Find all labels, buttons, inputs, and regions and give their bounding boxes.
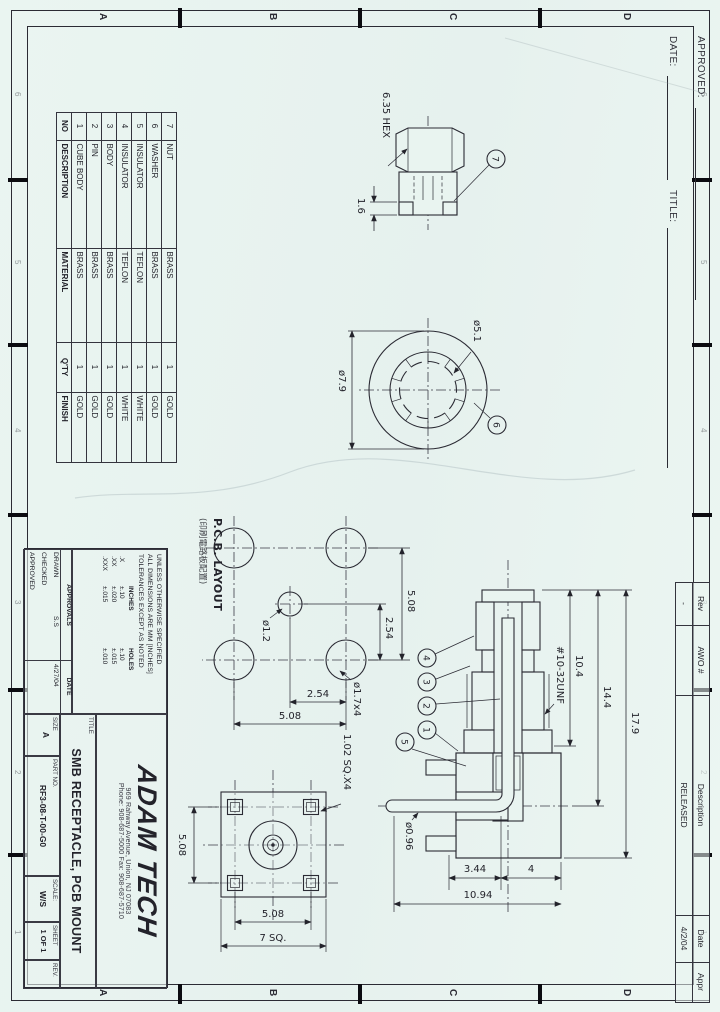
section-len-front-dim: 10.4 — [573, 655, 584, 677]
tol-cell: ±.020 — [109, 586, 118, 648]
note-line: TOLERANCES EXCEPT AS NOTED — [136, 554, 145, 710]
front-pitch-v-dim: 5.08 — [262, 909, 284, 920]
part-description: INSULATOR — [117, 140, 133, 249]
part-finish: WHITE — [132, 392, 148, 463]
tol-col-inches: INCHES — [126, 586, 135, 648]
part-qty: 1 — [132, 342, 148, 393]
section-h-top-dim: 4 — [528, 864, 534, 875]
drawn-by: S.S — [52, 616, 59, 627]
part-description: PIN — [87, 140, 103, 249]
company-phone-fax: Phone: 908-687-5000 Fax: 908-687-5710 — [117, 714, 124, 988]
part-qty: 1 — [147, 342, 163, 393]
sheet-label: SHEET — [51, 922, 60, 960]
size-box: SIZE A — [23, 713, 61, 757]
engineering-drawing-sheet: D C B A D C B A 6 5 4 3 2 1 6 5 4 3 2 1 … — [0, 0, 720, 1012]
tol-cell: ±.015 — [100, 586, 109, 648]
lock-washer-view: ø7.9 ø5.1 6 — [336, 318, 506, 462]
bom-header-description: DESCRIPTION — [57, 140, 73, 249]
part-no-label: PART NO. — [51, 756, 60, 876]
part-material: BRASS — [102, 248, 118, 343]
balloon-7: 7 — [490, 156, 500, 162]
tol-cell: ±.015 — [109, 648, 118, 708]
pcb-corner-hole-dim: ø1.7x4 — [351, 682, 362, 716]
part-finish: GOLD — [147, 392, 163, 463]
checked-label: CHECKED — [40, 552, 47, 585]
approvals-label: APPROVALS — [61, 584, 72, 626]
part-no: 5 — [132, 112, 148, 141]
tol-spacer — [126, 556, 135, 586]
title-box-label: TITLE — [87, 717, 94, 734]
bom-header-material: MATERIAL — [57, 248, 73, 343]
scan-crease — [75, 459, 635, 498]
title-box: TITLE SMB RECEPTACLE, PCB MOUNT — [59, 713, 97, 989]
section-thread-spec: #10-32UNF — [554, 646, 565, 704]
drawing-title: SMB RECEPTACLE, PCB MOUNT — [69, 714, 83, 988]
approved-row-label: APPROVED — [28, 552, 35, 590]
part-description: CUBE BODY — [72, 140, 88, 249]
tolerance-notes: UNLESS OTHERWISE SPECIFIED ALL DIMENSION… — [71, 549, 167, 715]
front-pitch-h-dim: 5.08 — [176, 834, 187, 856]
part-finish: GOLD — [162, 392, 178, 463]
tol-cell: .X — [117, 556, 126, 586]
balloon-4: 4 — [421, 655, 431, 661]
rev-box-label: REV. — [51, 960, 60, 988]
part-qty: 1 — [87, 342, 103, 393]
title-block: UNLESS OTHERWISE SPECIFIED ALL DIMENSION… — [24, 548, 168, 988]
sheet-value: 1 OF 1 — [39, 922, 48, 960]
part-no: 1 — [72, 112, 88, 141]
approvals-date-label: DATE — [61, 678, 72, 696]
balloon-3: 3 — [421, 679, 431, 685]
part-qty: 1 — [102, 342, 118, 393]
note-line: ALL DIMENSIONS ARE MM [INCHES] — [145, 554, 154, 710]
scale-label: SCALE: — [51, 876, 60, 922]
part-material: TEFLON — [117, 248, 133, 343]
tol-cell: ±.010 — [100, 648, 109, 708]
cross-section-view: 10.4 14.4 17.9 #10-32UNF 4 3.44 10.94 ø0… — [376, 560, 640, 912]
washer-od-dim: ø7.9 — [336, 370, 347, 392]
tol-cell: .XX — [109, 556, 118, 586]
parts-table: 7 NUT BRASS 1 GOLD 6 WASHER BRASS 1 GOLD… — [57, 112, 177, 462]
balloon-6: 6 — [491, 422, 501, 428]
part-description: WASHER — [147, 140, 163, 249]
part-qty: 1 — [72, 342, 88, 393]
part-finish: GOLD — [87, 392, 103, 463]
drawn-date: 4/27/04 — [52, 664, 59, 687]
section-pin-dia-dim: ø0.96 — [403, 822, 414, 850]
part-no: 3 — [102, 112, 118, 141]
tol-cell: ±.10 — [117, 586, 126, 648]
pcb-layout-title: P.C.B. LAYOUT — [211, 518, 224, 611]
section-len-total-dim: 17.9 — [629, 712, 640, 734]
balloon-2: 2 — [421, 703, 431, 709]
approvals-block: APPROVALS DATE DRAWN S.S 4/27/04 CHECKED… — [23, 549, 73, 715]
part-finish: WHITE — [117, 392, 133, 463]
part-description: NUT — [162, 140, 178, 249]
divider — [24, 660, 61, 661]
part-description: BODY — [102, 140, 118, 249]
hex-nut-side-view: 7 6.35 HEX 1.6 — [355, 92, 505, 231]
sheet-box: SHEET 1 OF 1 — [23, 921, 61, 961]
company-block: ADAM TECH 969 Rahway Avenue, Union, NJ 0… — [95, 713, 167, 989]
scale-box: SCALE: W/S — [23, 875, 61, 923]
size-value: A — [41, 714, 51, 756]
washer-id-dim: ø5.1 — [471, 320, 482, 342]
front-view: 1.02 SQ.X4 5.08 5.08 7 SQ. — [176, 734, 352, 952]
bom-header-finish: FINISH — [57, 392, 73, 463]
part-material: BRASS — [147, 248, 163, 343]
part-no: 4 — [117, 112, 133, 141]
nut-hex-dim: 6.35 HEX — [380, 92, 391, 138]
part-qty: 1 — [117, 342, 133, 393]
part-material: BRASS — [87, 248, 103, 343]
pcb-span-x-dim: 5.08 — [405, 590, 416, 612]
part-finish: GOLD — [72, 392, 88, 463]
nut-thickness-dim: 1.6 — [355, 198, 366, 214]
part-no: 6 — [147, 112, 163, 141]
company-logo: ADAM TECH — [131, 712, 162, 990]
part-finish: GOLD — [102, 392, 118, 463]
part-no: 2 — [87, 112, 103, 141]
section-h-mid-dim: 3.44 — [464, 864, 486, 875]
drawn-label: DRAWN — [52, 552, 59, 577]
part-qty: 1 — [162, 342, 178, 393]
balloon-1: 1 — [421, 727, 431, 733]
rev-box: REV. — [23, 959, 61, 989]
pcb-pitch-x-dim: 2.54 — [383, 617, 394, 639]
pcb-pitch-y-dim: 2.54 — [307, 689, 329, 700]
pcb-center-hole-dim: ø1.2 — [260, 620, 271, 642]
pcb-layout-view: 2.54 5.08 2.54 5.08 ø1.2 ø1.7x4 P.C.B. L… — [197, 516, 416, 730]
part-no-box: PART NO. RF3-08-T-00-G0 — [23, 755, 61, 877]
tol-col-holes: HOLES — [126, 648, 135, 708]
bom-header-qty: Q'TY — [57, 342, 73, 393]
scanned-drawing-page: D C B A D C B A 6 5 4 3 2 1 6 5 4 3 2 1 … — [0, 0, 720, 1012]
note-line: UNLESS OTHERWISE SPECIFIED — [154, 554, 163, 710]
part-material: TEFLON — [132, 248, 148, 343]
tol-cell: ±.10 — [117, 648, 126, 708]
pcb-layout-subtitle: (印刷電路板配置) — [197, 518, 208, 584]
balloon-5: 5 — [399, 739, 409, 745]
part-material: BRASS — [72, 248, 88, 343]
part-no: 7 — [162, 112, 178, 141]
tol-cell: .XXX — [100, 556, 109, 586]
section-len-mid-dim: 14.4 — [601, 686, 612, 708]
part-description: INSULATOR — [132, 140, 148, 249]
front-body-size-dim: 7 SQ. — [260, 933, 287, 944]
part-material: BRASS — [162, 248, 178, 343]
bom-header-no: NO — [57, 112, 73, 141]
front-post-size-dim: 1.02 SQ.X4 — [341, 734, 352, 790]
company-address: 969 Rahway Avenue, Union, NJ 07083 — [124, 714, 131, 988]
section-h-total-dim: 10.94 — [464, 890, 493, 901]
part-no-value: RF3-08-T-00-G0 — [38, 756, 48, 876]
scale-value: W/S — [38, 876, 48, 922]
scan-streak — [505, 38, 700, 92]
pcb-span-y-dim: 5.08 — [279, 711, 301, 722]
size-label: SIZE — [51, 714, 60, 756]
